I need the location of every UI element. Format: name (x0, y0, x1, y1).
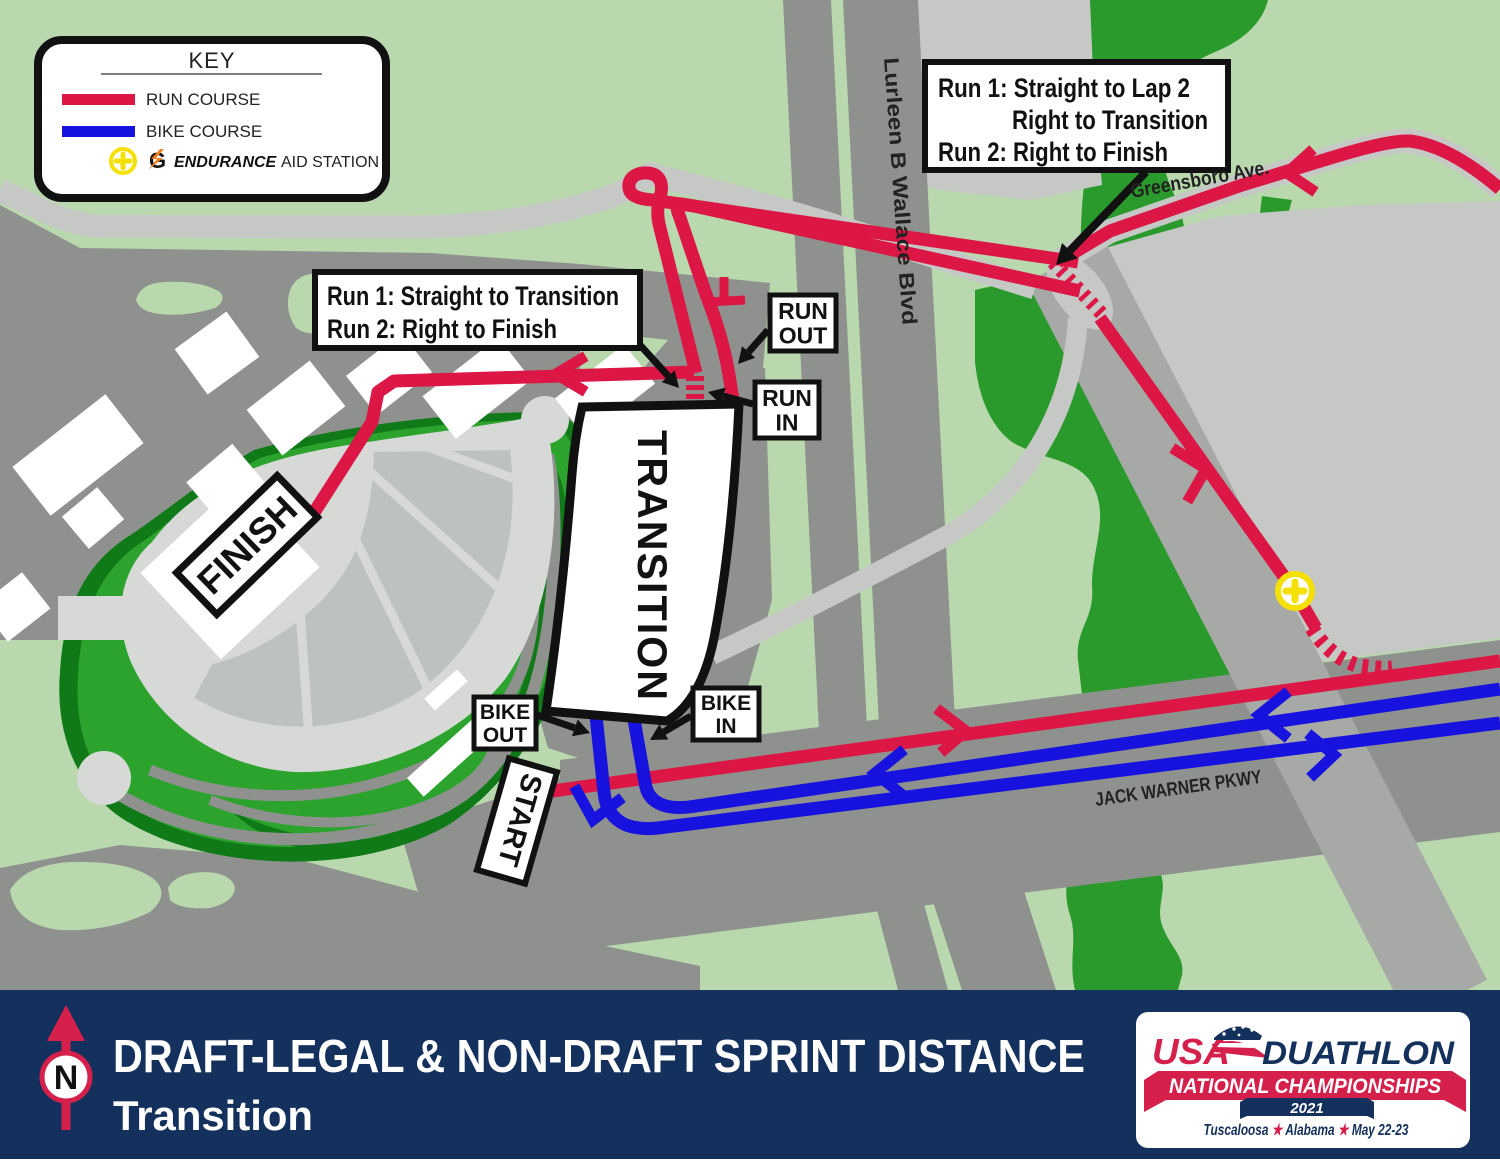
svg-text:Run 2: Right to Finish: Run 2: Right to Finish (938, 137, 1168, 167)
svg-text:BIKE: BIKE (480, 701, 530, 724)
svg-text:IN: IN (716, 715, 737, 738)
svg-text:DUATHLON: DUATHLON (1262, 1035, 1455, 1071)
svg-text:BIKE COURSE: BIKE COURSE (146, 122, 262, 141)
svg-text:RUN COURSE: RUN COURSE (146, 90, 260, 109)
svg-text:Tuscaloosa ★ Alabama ★ May 22-: Tuscaloosa ★ Alabama ★ May 22-23 (1204, 1122, 1409, 1139)
svg-text:Run 1: Straight to Transition: Run 1: Straight to Transition (327, 281, 619, 311)
svg-text:NATIONAL CHAMPIONSHIPS: NATIONAL CHAMPIONSHIPS (1169, 1075, 1441, 1098)
svg-text:DRAFT-LEGAL & NON-DRAFT SPRINT: DRAFT-LEGAL & NON-DRAFT SPRINT DISTANCE (113, 1030, 1085, 1082)
svg-text:Run 1: Straight to Lap 2: Run 1: Straight to Lap 2 (938, 73, 1190, 103)
svg-text:Right to Transition: Right to Transition (1012, 105, 1208, 135)
svg-text:KEY: KEY (188, 48, 235, 73)
svg-text:2021: 2021 (1289, 1100, 1323, 1117)
svg-text:OUT: OUT (779, 323, 828, 349)
svg-text:TRANSITION: TRANSITION (629, 430, 676, 702)
svg-text:ENDURANCE: ENDURANCE (174, 154, 278, 171)
svg-text:Transition: Transition (113, 1092, 313, 1139)
svg-text:AID STATION: AID STATION (281, 154, 379, 171)
svg-text:Run 2: Right to Finish: Run 2: Right to Finish (327, 314, 557, 344)
svg-text:RUN: RUN (762, 385, 812, 411)
svg-text:N: N (54, 1059, 79, 1097)
svg-text:RUN: RUN (778, 298, 828, 324)
svg-text:BIKE: BIKE (701, 692, 751, 715)
svg-text:OUT: OUT (483, 724, 528, 747)
svg-text:IN: IN (776, 410, 799, 436)
